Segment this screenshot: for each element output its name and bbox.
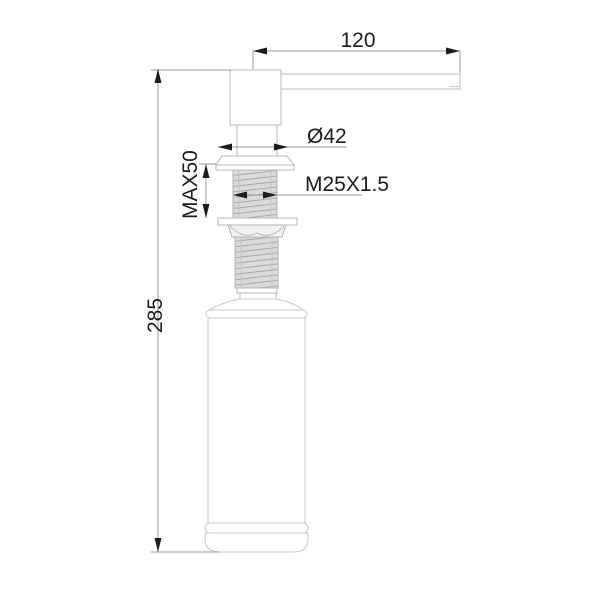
spout [281, 74, 460, 89]
dim-285-arrow-bottom [155, 538, 162, 552]
technical-drawing-page: 120 Ø42 M25X1.5 MAX50 285 [0, 0, 600, 600]
bottle-bottom-bead [205, 523, 308, 533]
bottle-shoulder [209, 299, 304, 310]
bottle-body [208, 318, 305, 523]
mounting-washer [218, 218, 297, 225]
dim-120-arrow-right [446, 48, 460, 55]
dim-m25-label: M25X1.5 [305, 173, 389, 196]
shank-end-ring [237, 288, 277, 293]
dim-42-arrow-left [218, 144, 232, 151]
dim-285-arrow-top [155, 69, 162, 83]
dim-120-label: 120 [340, 29, 375, 52]
dim-max50-arrow-bottom [203, 204, 210, 218]
dim-120-arrow-left [253, 48, 267, 55]
bottle-top-bead [206, 310, 307, 318]
dimension-mounting-thickness: MAX50 [179, 150, 216, 219]
bottle-bottom-cup [205, 533, 308, 552]
dim-42-label: Ø42 [307, 125, 347, 148]
bottle-neck [240, 293, 276, 299]
dim-285-label: 285 [144, 298, 167, 333]
soap-dispenser-drawing: 120 Ø42 M25X1.5 MAX50 285 [0, 0, 600, 600]
pump-head [230, 70, 281, 125]
hex-nut [228, 225, 286, 237]
dim-42-arrow-right [274, 144, 288, 151]
dim-max50-label: MAX50 [179, 150, 202, 219]
flange-base-plate [216, 165, 294, 170]
flange-cone [216, 156, 294, 165]
dimension-spout-reach: 120 [253, 29, 460, 73]
dim-max50-arrow-top [203, 164, 210, 178]
pump-neck [237, 125, 277, 156]
